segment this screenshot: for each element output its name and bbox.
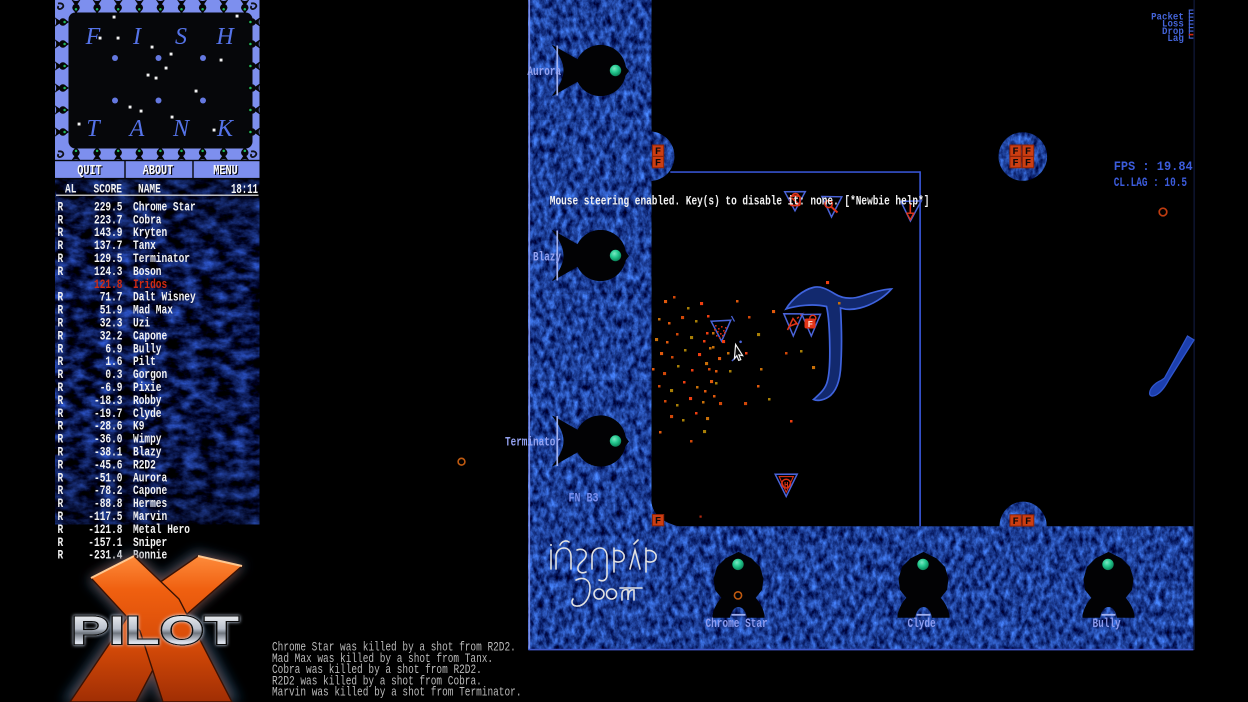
- svg-text:FN B3: FN B3: [569, 492, 599, 506]
- svg-text:-45.6: -45.6: [94, 458, 123, 472]
- svg-text:-38.1: -38.1: [94, 446, 123, 460]
- svg-text:MENU: MENU: [213, 164, 237, 179]
- svg-text:Aurora: Aurora: [133, 471, 168, 485]
- svg-text:SCORE: SCORE: [94, 183, 123, 197]
- svg-text:R: R: [58, 381, 64, 395]
- svg-text:Terminator: Terminator: [133, 252, 190, 266]
- svg-text:Capone: Capone: [133, 484, 167, 498]
- svg-text:-51.0: -51.0: [94, 471, 123, 485]
- svg-text:Lag: Lag: [1167, 33, 1183, 45]
- svg-text:NAME: NAME: [138, 183, 161, 197]
- svg-text:-28.6: -28.6: [94, 420, 123, 434]
- svg-text:-18.3: -18.3: [94, 394, 123, 408]
- svg-text:71.7: 71.7: [100, 291, 123, 305]
- svg-text:51.9: 51.9: [100, 304, 123, 318]
- svg-text:Chrome Star: Chrome Star: [706, 617, 768, 631]
- svg-text:R: R: [58, 265, 64, 279]
- svg-text:R: R: [58, 239, 64, 253]
- svg-text:PILOT: PILOT: [71, 609, 239, 653]
- svg-text:R: R: [58, 523, 64, 537]
- svg-text:Robby: Robby: [133, 394, 162, 408]
- svg-text:6.9: 6.9: [105, 342, 122, 356]
- svg-text:Terminator: Terminator: [505, 436, 561, 450]
- svg-text:Clyde: Clyde: [133, 407, 162, 421]
- svg-text:R: R: [58, 446, 64, 460]
- svg-text:Chrome Star: Chrome Star: [133, 200, 196, 214]
- svg-text:H: H: [215, 24, 235, 50]
- svg-text:-36.0: -36.0: [94, 433, 123, 447]
- svg-text:-157.1: -157.1: [88, 536, 122, 550]
- svg-text:H: H: [784, 482, 789, 490]
- svg-text:Capone: Capone: [133, 329, 167, 343]
- svg-text:F: F: [808, 320, 813, 330]
- svg-text:Clyde: Clyde: [908, 617, 936, 631]
- svg-text:Bully: Bully: [1093, 617, 1122, 631]
- svg-text:Metal Hero: Metal Hero: [133, 523, 190, 537]
- svg-text:-6.9: -6.9: [100, 381, 123, 395]
- svg-text:Pixie: Pixie: [133, 381, 162, 395]
- svg-text:R: R: [58, 317, 64, 331]
- svg-text:Dalt Wisney: Dalt Wisney: [133, 291, 196, 305]
- svg-text:Boson: Boson: [133, 265, 162, 279]
- svg-text:Marvin was killed by a shot fr: Marvin was killed by a shot from Termina…: [272, 686, 522, 700]
- svg-text:R: R: [58, 510, 64, 524]
- svg-text:Wimpy: Wimpy: [133, 433, 162, 447]
- svg-text:32.2: 32.2: [100, 329, 123, 343]
- svg-text:32.3: 32.3: [100, 317, 123, 331]
- svg-text:-78.2: -78.2: [94, 484, 123, 498]
- svg-text:-121.8: -121.8: [88, 523, 122, 537]
- svg-text:124.3: 124.3: [94, 265, 123, 279]
- svg-text:-117.5: -117.5: [88, 510, 122, 524]
- svg-text:R: R: [58, 342, 64, 356]
- svg-text:1.6: 1.6: [105, 355, 122, 369]
- svg-text:Iridos: Iridos: [133, 278, 167, 292]
- svg-text:R: R: [58, 471, 64, 485]
- svg-text:Mouse steering enabled. Key(s): Mouse steering enabled. Key(s) to disabl…: [550, 193, 930, 208]
- svg-text:N: N: [172, 116, 191, 142]
- svg-text:Sniper: Sniper: [133, 536, 167, 550]
- svg-text:143.9: 143.9: [94, 226, 123, 240]
- svg-text:Hermes: Hermes: [133, 497, 167, 511]
- svg-text:R: R: [58, 252, 64, 266]
- svg-text:-19.7: -19.7: [94, 407, 123, 421]
- svg-text:R: R: [58, 549, 64, 563]
- svg-text:137.7: 137.7: [94, 239, 123, 253]
- svg-text:Blazy: Blazy: [533, 251, 561, 265]
- svg-text:R: R: [58, 497, 64, 511]
- svg-text:R: R: [58, 213, 64, 227]
- svg-text:K9: K9: [133, 420, 144, 434]
- svg-text:FPS : 19.84: FPS : 19.84: [1114, 159, 1193, 174]
- svg-text:K: K: [216, 116, 235, 142]
- svg-text:R: R: [58, 433, 64, 447]
- svg-text:129.5: 129.5: [94, 252, 123, 266]
- svg-text:A: A: [128, 116, 145, 142]
- svg-text:Marvin: Marvin: [133, 510, 167, 524]
- svg-text:Pilt: Pilt: [133, 355, 156, 369]
- svg-text:0.3: 0.3: [105, 368, 122, 382]
- svg-text:R: R: [58, 536, 64, 550]
- svg-text:T: T: [86, 116, 101, 142]
- svg-text:18:11: 18:11: [231, 183, 258, 198]
- svg-text:F: F: [85, 24, 101, 50]
- svg-text:ABOUT: ABOUT: [143, 164, 174, 179]
- svg-text:Gorgon: Gorgon: [133, 368, 167, 382]
- svg-text:QUIT: QUIT: [77, 164, 101, 179]
- svg-text:CL.LAG : 10.5: CL.LAG : 10.5: [1114, 175, 1187, 190]
- svg-text:R: R: [58, 355, 64, 369]
- svg-text:R: R: [58, 304, 64, 318]
- svg-text:R: R: [58, 368, 64, 382]
- svg-text:Bully: Bully: [133, 342, 162, 356]
- svg-text:R2D2: R2D2: [133, 458, 156, 472]
- svg-text:R: R: [58, 226, 64, 240]
- svg-text:R: R: [58, 420, 64, 434]
- svg-text:R: R: [58, 394, 64, 408]
- svg-text:Uzi: Uzi: [133, 317, 150, 331]
- svg-text:I: I: [132, 24, 142, 50]
- svg-text:AL: AL: [65, 183, 76, 197]
- svg-text:229.5: 229.5: [94, 200, 123, 214]
- svg-text:Kryten: Kryten: [133, 226, 167, 240]
- svg-text:223.7: 223.7: [94, 213, 123, 227]
- svg-text:Aurora: Aurora: [527, 65, 561, 79]
- svg-text:R: R: [58, 291, 64, 305]
- svg-text:R: R: [58, 407, 64, 421]
- svg-text:-88.8: -88.8: [94, 497, 123, 511]
- svg-text:Blazy: Blazy: [133, 446, 162, 460]
- svg-text:R: R: [58, 484, 64, 498]
- svg-text:Mad Max: Mad Max: [133, 304, 173, 318]
- svg-text:Cobra: Cobra: [133, 213, 162, 227]
- svg-text:S: S: [175, 24, 187, 50]
- svg-text:121.8: 121.8: [94, 278, 123, 292]
- svg-text:Tanx: Tanx: [133, 239, 156, 253]
- svg-text:R: R: [58, 458, 64, 472]
- svg-text:R: R: [58, 329, 64, 343]
- svg-text:R: R: [58, 200, 64, 214]
